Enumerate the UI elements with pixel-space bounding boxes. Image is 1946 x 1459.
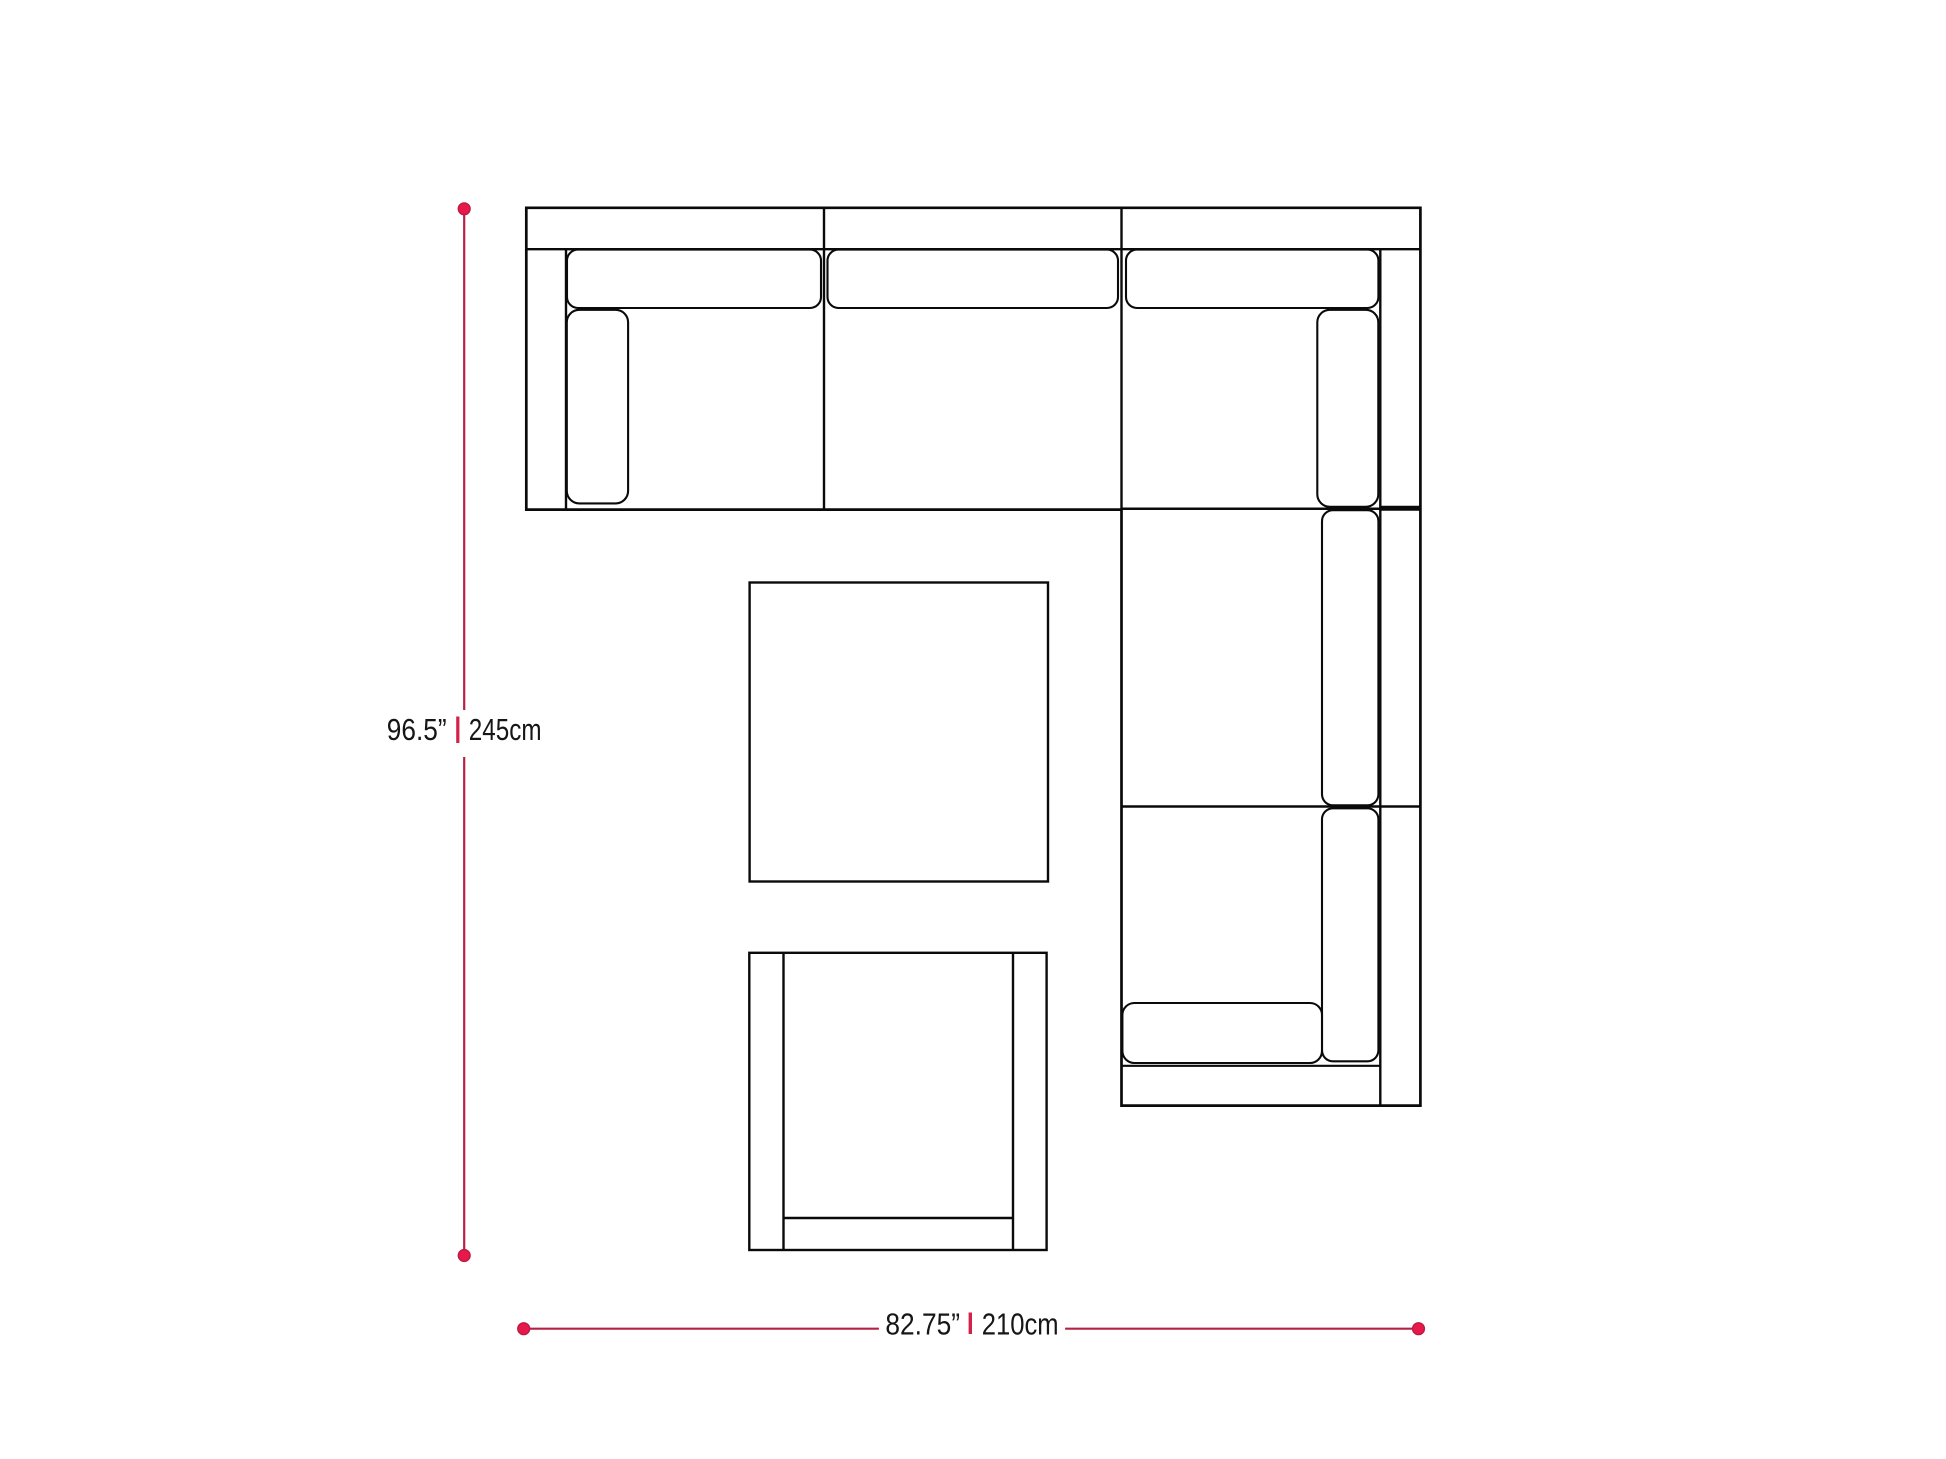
svg-text:210cm: 210cm <box>982 1307 1059 1342</box>
svg-text:245cm: 245cm <box>469 712 542 747</box>
svg-text:82.75”: 82.75” <box>885 1307 960 1342</box>
svg-text:96.5”: 96.5” <box>387 712 447 747</box>
